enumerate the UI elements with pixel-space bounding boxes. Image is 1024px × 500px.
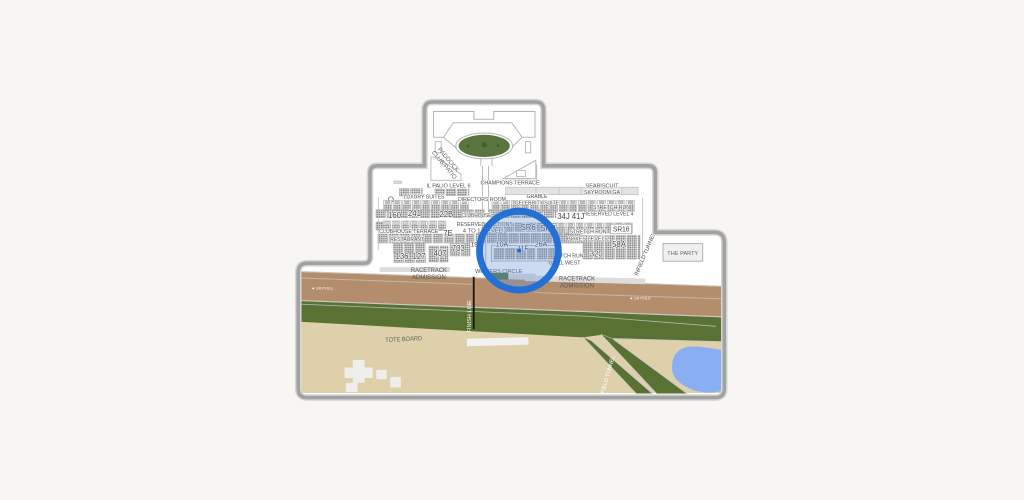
svg-text:320: 320 [590,250,604,259]
svg-text:127: 127 [412,252,425,261]
svg-text:GRABLE: GRABLE [527,194,548,200]
svg-text:IL PALIO LEVEL 6: IL PALIO LEVEL 6 [427,183,472,189]
svg-text:STRETCH RUN: STRETCH RUN [570,230,607,236]
svg-text:SEABISCUIT: SEABISCUIT [586,184,620,190]
svg-text:FINISH LINE: FINISH LINE [467,300,473,333]
svg-text:CLUBHOUSE TERRACE: CLUBHOUSE TERRACE [379,229,438,235]
svg-text:7E: 7E [443,229,453,238]
svg-text:STRETCH RUN: STRETCH RUN [593,205,630,211]
svg-text:RESERVED LEVEL 4: RESERVED LEVEL 4 [584,211,635,217]
svg-text:703: 703 [452,244,465,253]
svg-text:ADMISSION: ADMISSION [412,274,446,281]
svg-text:THE PARTY: THE PARTY [667,251,698,257]
svg-text:407: 407 [433,249,446,258]
svg-text:241: 241 [408,209,421,218]
svg-text:58A: 58A [612,240,627,249]
svg-text:41J: 41J [572,212,585,221]
svg-text:22B: 22B [439,210,453,219]
svg-text:RESTAURANT: RESTAURANT [390,237,424,243]
svg-text:◄ 1/8 POLE: ◄ 1/8 POLE [311,285,333,290]
svg-text:136: 136 [395,252,408,261]
svg-text:CELEBRITY SUITE: CELEBRITY SUITE [515,200,559,206]
svg-text:RACETRACK: RACETRACK [411,267,448,274]
svg-text:LUXURY SUITES: LUXURY SUITES [404,195,445,201]
svg-text:SR16: SR16 [613,227,630,234]
svg-text:CLUBHOUSE: CLUBHOUSE [461,213,491,219]
svg-text:ADMISSION: ADMISSION [560,282,594,289]
svg-text:34J: 34J [557,212,570,221]
svg-text:SKYROOM GA: SKYROOM GA [584,190,620,196]
svg-text:160: 160 [388,211,402,220]
svg-text:CHAMPIONS TERRACE: CHAMPIONS TERRACE [481,180,540,186]
svg-text:BOXES LEVEL 2: BOXES LEVEL 2 [567,236,609,242]
svg-text:◄ 1/8 POLE: ◄ 1/8 POLE [629,295,651,300]
svg-text:DIRECTORS ROOM: DIRECTORS ROOM [458,197,506,203]
